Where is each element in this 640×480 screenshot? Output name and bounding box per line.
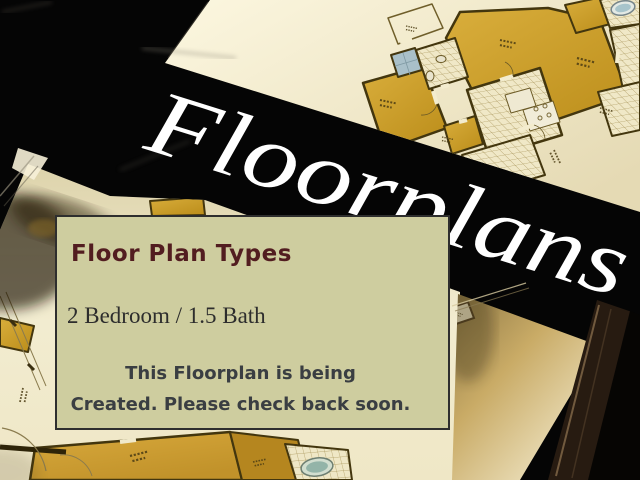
unit-type-label: 2 Bedroom / 1.5 Bath	[67, 303, 266, 329]
info-box: Floor Plan Types 2 Bedroom / 1.5 Bath Th…	[55, 215, 450, 430]
coming-soon-message: This Floorplan is being Created. Please …	[45, 358, 436, 420]
sink-icon	[436, 56, 446, 63]
coming-soon-message-line2: Created. Please check back soon.	[45, 389, 436, 420]
coming-soon-message-line1: This Floorplan is being	[45, 358, 436, 389]
floorplans-page: Floorplans Floor Plan Types 2 Bedroom / …	[0, 0, 640, 480]
toilet-icon	[426, 71, 434, 81]
info-box-heading: Floor Plan Types	[71, 241, 292, 267]
